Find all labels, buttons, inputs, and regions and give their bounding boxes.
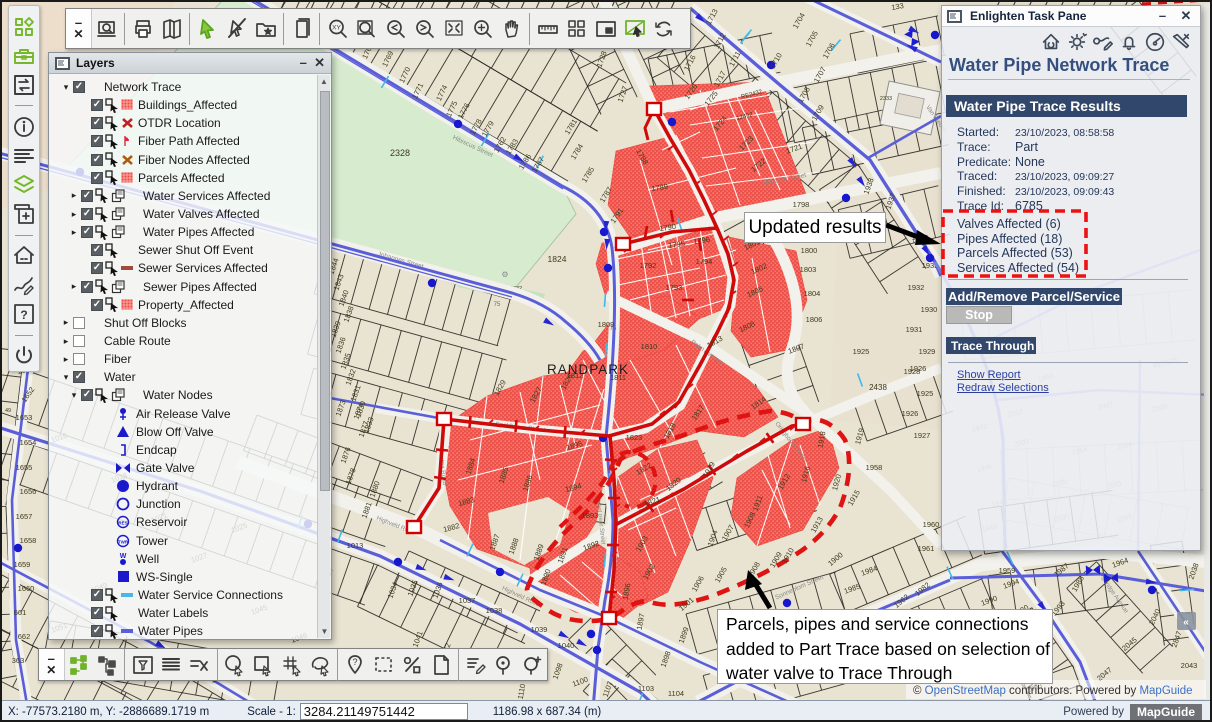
svg-text:1103: 1103 bbox=[638, 684, 654, 693]
svg-text:1893: 1893 bbox=[582, 511, 599, 520]
svg-text:XY: XY bbox=[332, 24, 341, 31]
svg-text:1925: 1925 bbox=[917, 389, 934, 398]
svg-text:1960: 1960 bbox=[923, 520, 940, 529]
svg-text:1936: 1936 bbox=[912, 233, 929, 242]
svg-text:1925: 1925 bbox=[853, 347, 870, 356]
svg-text:1039: 1039 bbox=[531, 625, 548, 634]
svg-text:© OpenStreetMap contributors.: © OpenStreetMap contributors. Powered by… bbox=[913, 685, 1193, 697]
svg-text:TWR: TWR bbox=[118, 539, 129, 544]
svg-text:1803: 1803 bbox=[800, 265, 817, 274]
svg-text:1798: 1798 bbox=[793, 200, 810, 209]
svg-text:2333: 2333 bbox=[880, 96, 892, 102]
svg-text:1806: 1806 bbox=[806, 315, 823, 324]
svg-text:1800: 1800 bbox=[801, 246, 818, 255]
svg-text:1810: 1810 bbox=[641, 342, 658, 351]
svg-text:1038: 1038 bbox=[486, 606, 503, 615]
svg-text:1660: 1660 bbox=[18, 584, 35, 593]
svg-text:1824: 1824 bbox=[548, 254, 567, 264]
svg-text:1040: 1040 bbox=[558, 641, 575, 650]
svg-text:662: 662 bbox=[18, 632, 31, 641]
svg-text:661: 661 bbox=[14, 608, 27, 617]
svg-text:1931: 1931 bbox=[906, 325, 923, 334]
svg-text:1926: 1926 bbox=[902, 409, 919, 418]
svg-text:1794: 1794 bbox=[696, 257, 713, 266]
svg-text:⚙: ⚙ bbox=[501, 270, 508, 279]
svg-text:2328: 2328 bbox=[390, 148, 410, 158]
svg-text:1961: 1961 bbox=[918, 544, 935, 553]
svg-text:1658: 1658 bbox=[20, 536, 37, 545]
svg-text:1655: 1655 bbox=[16, 463, 33, 472]
svg-text:75: 75 bbox=[610, 326, 617, 332]
svg-text:1659: 1659 bbox=[14, 560, 31, 569]
svg-text:1929: 1929 bbox=[919, 347, 936, 356]
svg-text:RES: RES bbox=[118, 521, 127, 526]
svg-text:1656: 1656 bbox=[20, 487, 37, 496]
svg-text:1959: 1959 bbox=[999, 566, 1016, 575]
svg-text:?: ? bbox=[20, 308, 27, 322]
svg-text:2438: 2438 bbox=[869, 383, 887, 392]
svg-text:1037: 1037 bbox=[459, 596, 476, 605]
svg-text:363: 363 bbox=[12, 656, 25, 665]
svg-text:75: 75 bbox=[494, 302, 501, 308]
svg-text:1654: 1654 bbox=[20, 438, 37, 447]
svg-text:49: 49 bbox=[5, 408, 11, 414]
svg-text:1104: 1104 bbox=[668, 689, 684, 698]
svg-text:1793: 1793 bbox=[666, 283, 683, 292]
svg-text:1930: 1930 bbox=[921, 305, 938, 314]
svg-text:1653: 1653 bbox=[16, 413, 33, 422]
svg-text:1657: 1657 bbox=[16, 512, 33, 521]
svg-text:1927: 1927 bbox=[914, 431, 931, 440]
svg-text:?: ? bbox=[353, 657, 358, 667]
svg-text:2043: 2043 bbox=[1181, 661, 1198, 670]
svg-text:1823: 1823 bbox=[626, 433, 643, 442]
svg-text:1932: 1932 bbox=[908, 283, 925, 292]
svg-text:1926: 1926 bbox=[910, 364, 927, 373]
svg-text:1013: 1013 bbox=[347, 541, 364, 550]
svg-text:RANDPARK: RANDPARK bbox=[547, 362, 629, 377]
svg-text:W: W bbox=[120, 553, 127, 560]
svg-text:1804: 1804 bbox=[804, 289, 821, 298]
svg-text:1958: 1958 bbox=[866, 463, 883, 472]
svg-text:1792: 1792 bbox=[640, 261, 657, 270]
